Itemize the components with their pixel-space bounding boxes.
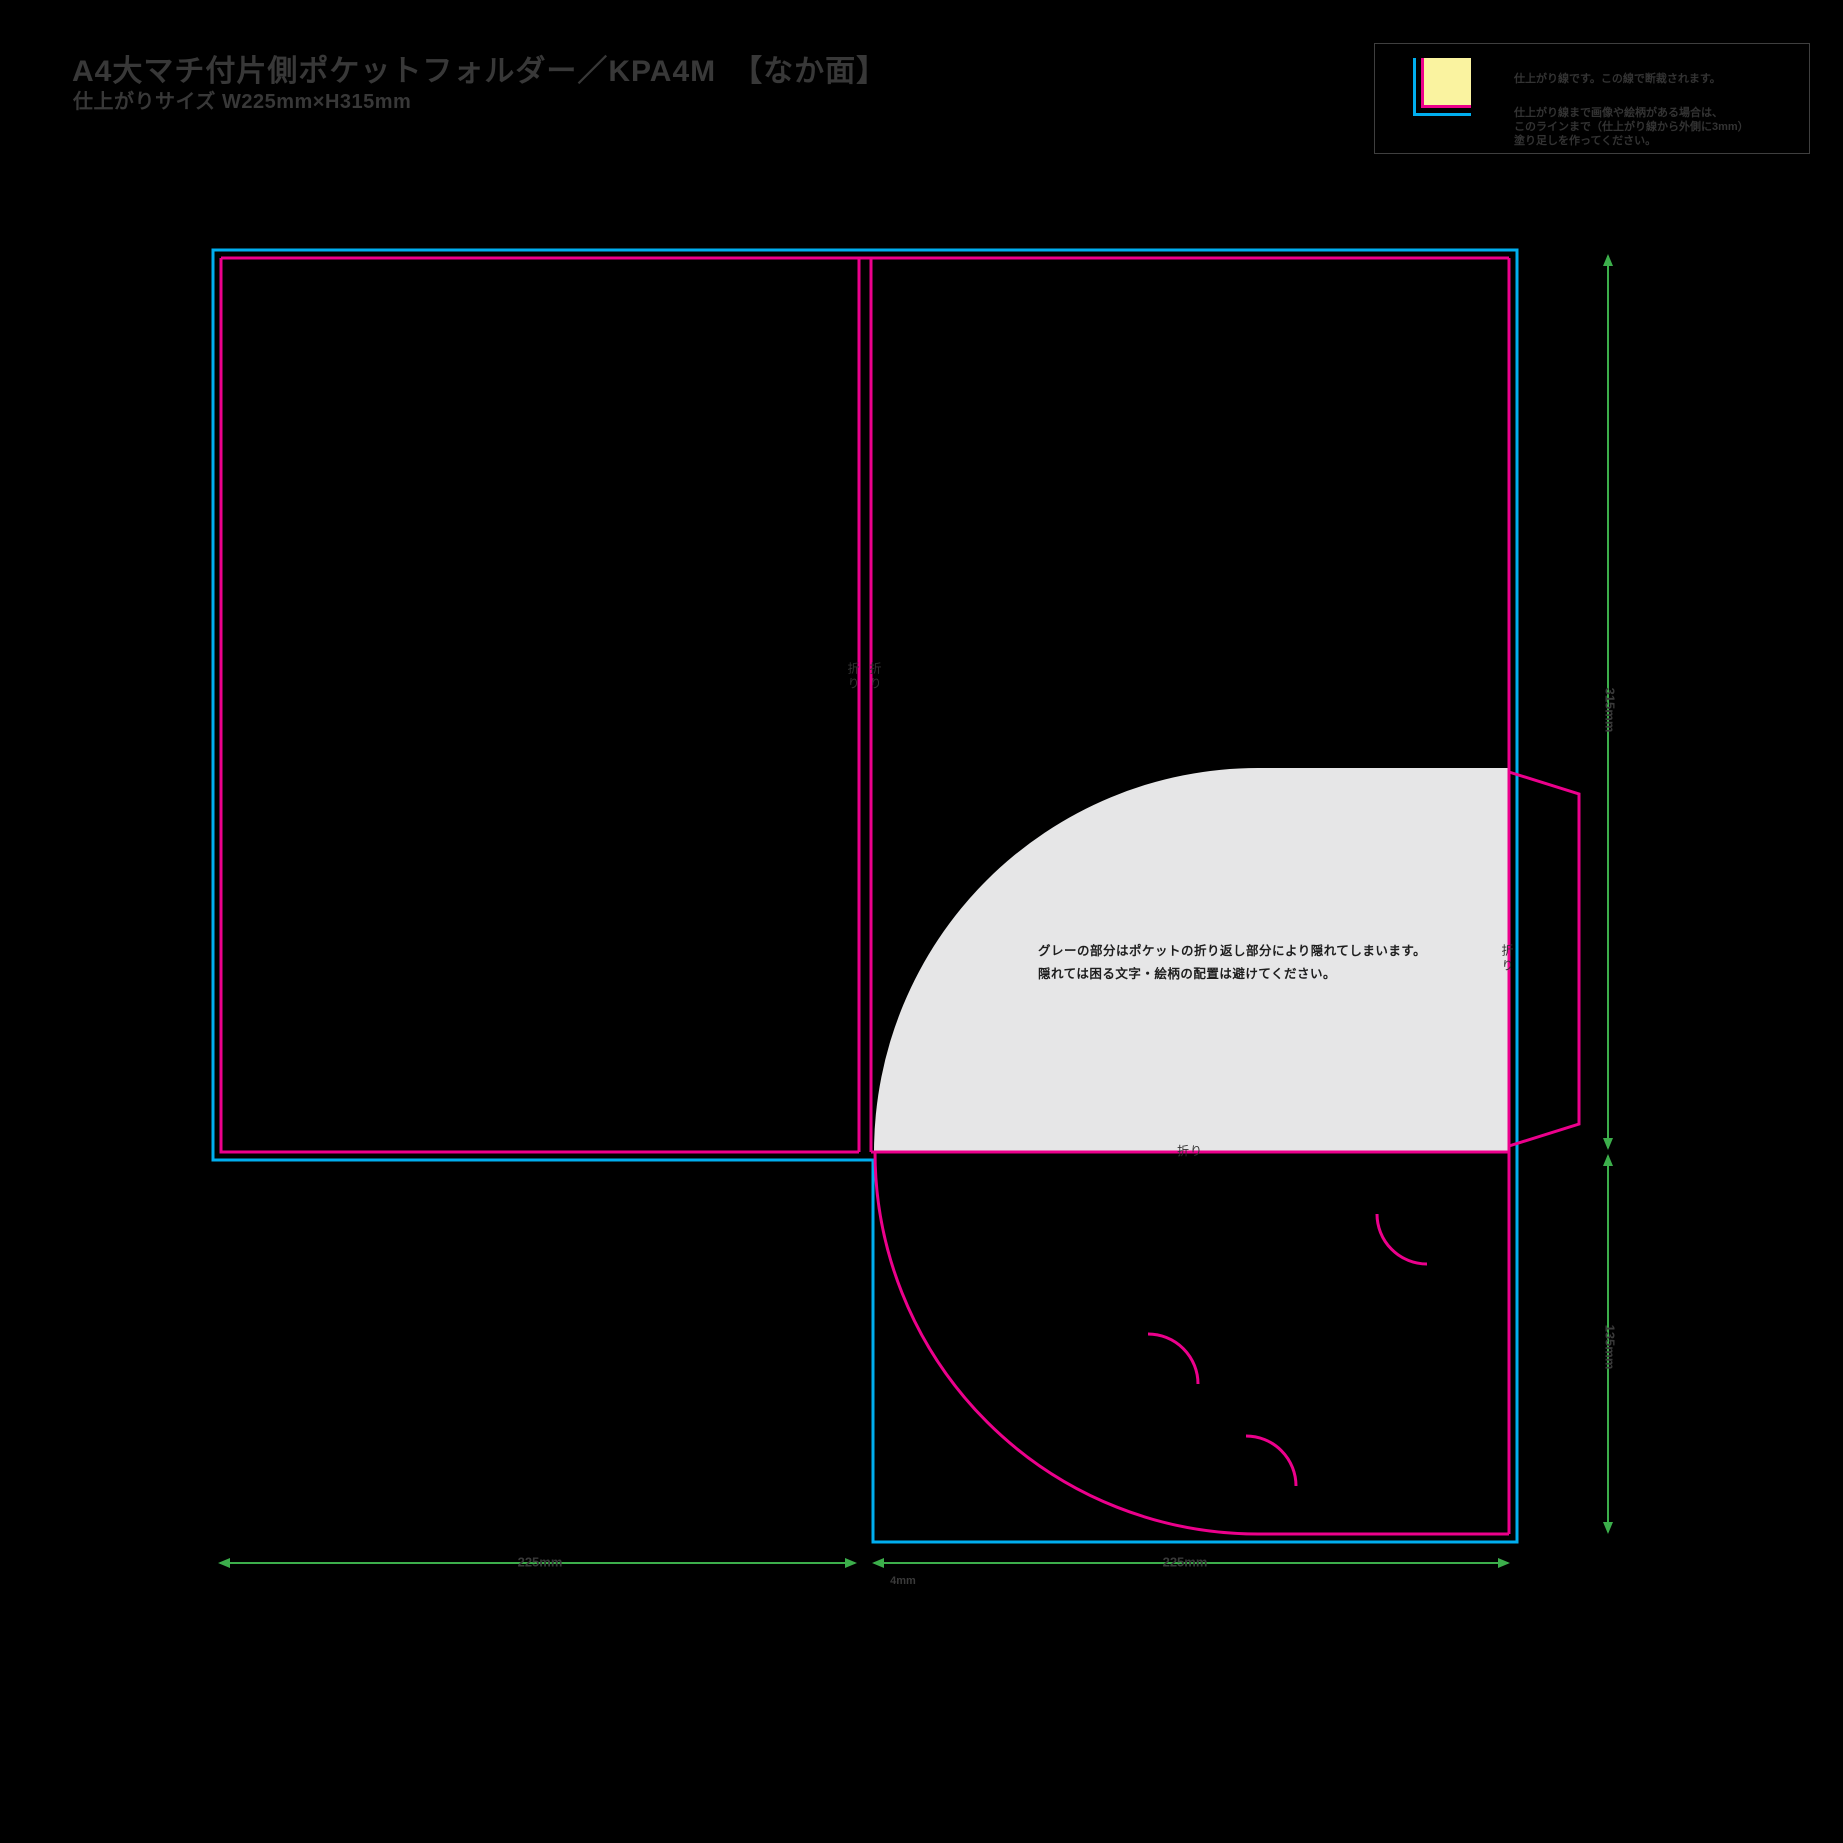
dim-label-spine: 4mm: [890, 1575, 916, 1587]
legend-note-bleed-line1: 仕上がり線まで画像や絵柄がある場合は、: [1514, 106, 1749, 120]
legend-artwork-swatch: [1421, 58, 1471, 108]
dim-label-width-right: 225mm: [1163, 1555, 1208, 1570]
fold-label-spine-left: 折り: [845, 662, 862, 692]
legend-box: 仕上がり線です。この線で断裁されます。 仕上がり線まで画像や絵柄がある場合は、 …: [1374, 43, 1810, 154]
page-title: A4大マチ付片側ポケットフォルダー／KPA4M 【なか面】: [72, 46, 887, 90]
dim-label-width-left: 225mm: [518, 1555, 563, 1570]
legend-note-bleed-line2: このラインまで（仕上がり線から外側に3mm）: [1514, 120, 1749, 134]
finish-left-panel: [221, 258, 859, 1152]
fold-label-spine-right: 折り: [867, 662, 884, 692]
arrow-left-icon: [872, 1558, 884, 1568]
thumb-cut-arc-3: [1246, 1436, 1296, 1486]
page-subtitle: 仕上がりサイズ W225mm×H315mm: [73, 85, 411, 114]
legend-cut-line-sample: [1413, 58, 1416, 116]
fold-label-pocket: 折り: [1177, 1142, 1203, 1159]
pocket-curve: [875, 1152, 1509, 1534]
arrow-down-icon: [1603, 1138, 1613, 1150]
legend-note-bleed-line3: 塗り足しを作ってください。: [1514, 134, 1749, 148]
legend-note-bleed: 仕上がり線まで画像や絵柄がある場合は、 このラインまで（仕上がり線から外側に3m…: [1514, 106, 1749, 148]
legend-finish-line-sample: [1421, 58, 1424, 108]
arrow-left-icon: [218, 1558, 230, 1568]
thumb-cut-arc-1: [1377, 1214, 1427, 1264]
hidden-area-note-line1: グレーの部分はポケットの折り返し部分により隠れてしまいます。: [1038, 940, 1426, 963]
dieline-drawing: [0, 0, 1843, 1843]
template-canvas: A4大マチ付片側ポケットフォルダー／KPA4M 【なか面】 仕上がりサイズ W2…: [0, 0, 1843, 1843]
dim-label-height-pocket: 135mm: [1603, 1325, 1618, 1370]
arrow-up-icon: [1603, 1154, 1613, 1166]
hidden-area-note-line2: 隠れては困る文字・絵柄の配置は避けてください。: [1038, 963, 1426, 986]
arrow-right-icon: [845, 1558, 857, 1568]
hidden-area-note: グレーの部分はポケットの折り返し部分により隠れてしまいます。 隠れては困る文字・…: [1038, 940, 1426, 986]
arrow-up-icon: [1603, 254, 1613, 266]
legend-note-cut: 仕上がり線です。この線で断裁されます。: [1514, 70, 1721, 86]
dim-label-height-main: 315mm: [1603, 688, 1618, 733]
glue-flap-outline: [1509, 772, 1579, 1146]
legend-finish-line-sample: [1421, 105, 1471, 108]
thumb-cut-arc-2: [1148, 1334, 1198, 1384]
arrow-down-icon: [1603, 1522, 1613, 1534]
legend-cut-line-sample: [1413, 113, 1471, 116]
arrow-right-icon: [1498, 1558, 1510, 1568]
fold-label-flap: 折り: [1499, 944, 1516, 974]
